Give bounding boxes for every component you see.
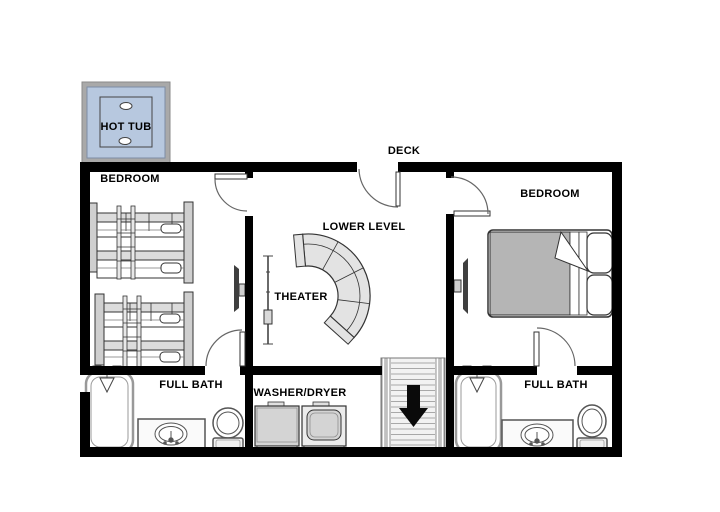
- double-bed: [488, 230, 612, 317]
- lower-level-label: LOWER LEVEL: [323, 221, 406, 233]
- pillow: [587, 275, 612, 315]
- bathtub-right: [456, 366, 501, 452]
- hot-tub-jet: [119, 138, 131, 145]
- bedroom-right-tv: [454, 258, 468, 314]
- floor-plan: HOT TUB DECK BEDROOM BEDROOM LOWER LEVEL…: [0, 0, 720, 512]
- washer: [255, 402, 299, 451]
- bath-left-door: [206, 330, 245, 366]
- bathtub-left: [86, 366, 133, 452]
- sectional-sofa: [294, 234, 370, 344]
- staircase-down: [381, 358, 445, 448]
- toilet-right: [577, 405, 607, 450]
- bedroom-left-door: [215, 174, 247, 211]
- projection-screen: [263, 256, 273, 344]
- dryer: [302, 402, 346, 451]
- deck-door: [359, 169, 400, 207]
- bedroom-left-tv: [234, 265, 245, 312]
- floor-plan-drawing: [0, 0, 720, 512]
- sink-vanity-left: [138, 419, 205, 451]
- theater-label: THEATER: [274, 291, 327, 303]
- full-bath-left-label: FULL BATH: [159, 379, 222, 391]
- full-bath-right-label: FULL BATH: [524, 379, 587, 391]
- bedroom-right-label: BEDROOM: [520, 188, 580, 200]
- bedroom-left-label: BEDROOM: [100, 173, 160, 185]
- sink-vanity-right: [502, 420, 573, 451]
- bedroom-right-door: [451, 177, 490, 216]
- bath-right-door: [534, 328, 575, 366]
- hot-tub-label: HOT TUB: [101, 121, 152, 133]
- toilet-left: [213, 408, 243, 450]
- bunk-bed-1: [88, 202, 193, 283]
- pillow: [587, 233, 612, 273]
- bunk-bed-2: [95, 292, 193, 372]
- washer-dryer-label: WASHER/DRYER: [253, 387, 346, 399]
- hot-tub-jet: [120, 103, 132, 110]
- deck-label: DECK: [388, 145, 420, 157]
